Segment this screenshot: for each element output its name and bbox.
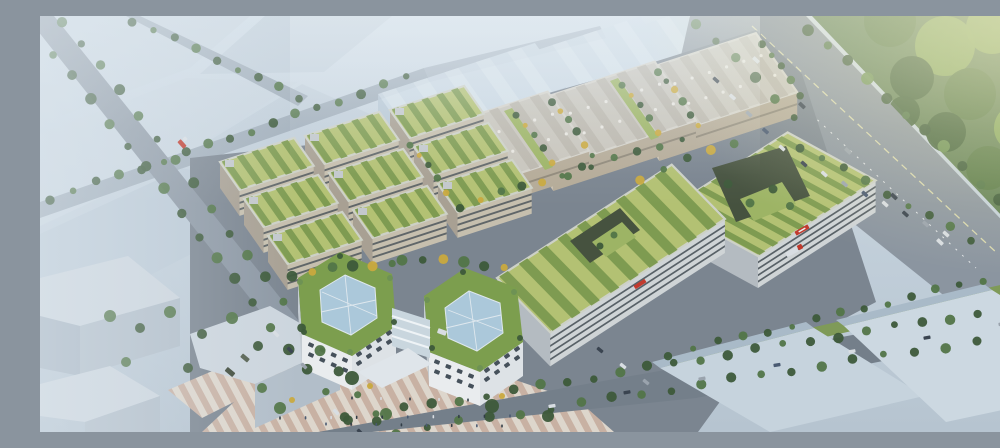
sunlight-glow [640, 16, 1000, 276]
atmospheric-haze-left [40, 16, 300, 432]
aerial-rendering-industrial-park [40, 16, 1000, 432]
scene-canvas [40, 16, 1000, 432]
